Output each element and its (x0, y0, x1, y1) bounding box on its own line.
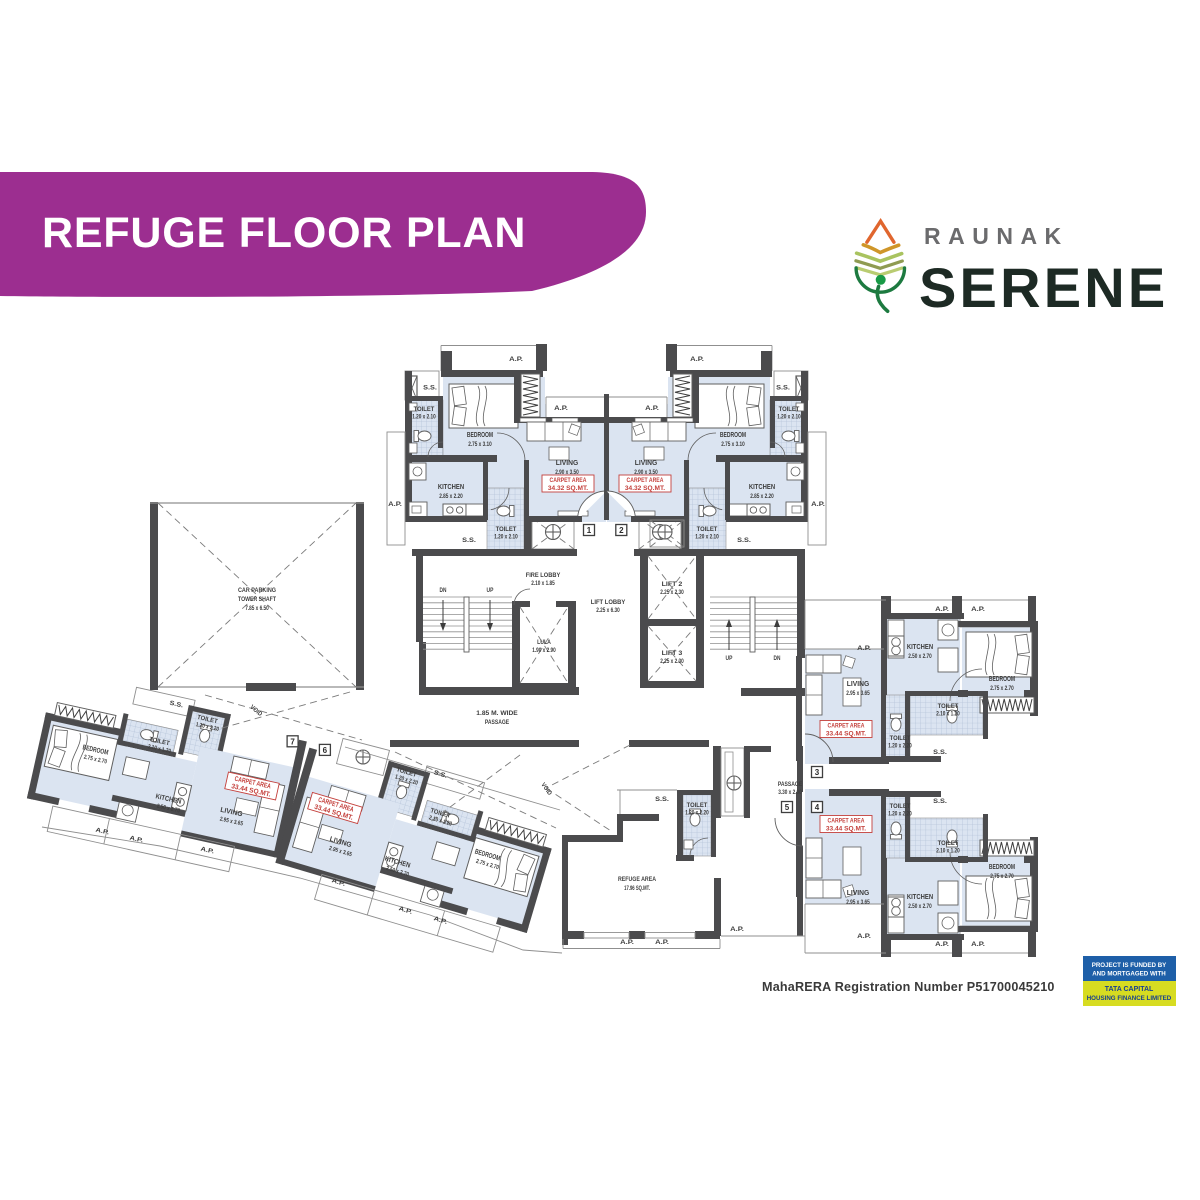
svg-text:LIFT 3: LIFT 3 (662, 650, 683, 657)
svg-text:MahaRERA Registration Number P: MahaRERA Registration Number P5170004521… (762, 980, 1055, 994)
svg-text:RAUNAK: RAUNAK (924, 223, 1069, 249)
svg-text:KITCHEN: KITCHEN (438, 484, 464, 491)
svg-text:1.20 x 2.20: 1.20 x 2.20 (685, 811, 709, 817)
svg-text:33.44 SQ.MT.: 33.44 SQ.MT. (826, 826, 866, 833)
svg-text:A.P.: A.P. (811, 501, 825, 508)
svg-text:1: 1 (587, 526, 592, 535)
svg-text:AND MORTGAGED WITH: AND MORTGAGED WITH (1092, 971, 1166, 978)
svg-text:PROJECT IS FUNDED BY: PROJECT IS FUNDED BY (1092, 962, 1167, 969)
svg-text:REFUGE AREA: REFUGE AREA (618, 876, 656, 883)
svg-text:A.P.: A.P. (857, 645, 871, 652)
svg-text:7: 7 (290, 737, 295, 746)
svg-text:3.30 x 2.00: 3.30 x 2.00 (778, 790, 802, 796)
svg-text:BEDROOM: BEDROOM (989, 864, 1015, 871)
svg-text:A.P.: A.P. (398, 905, 414, 916)
svg-text:CAR PARKING: CAR PARKING (238, 587, 276, 594)
svg-text:A.P.: A.P. (388, 501, 402, 508)
svg-text:A.P.: A.P. (554, 405, 568, 412)
svg-text:6: 6 (323, 746, 328, 755)
svg-text:CARPET AREA: CARPET AREA (550, 477, 587, 484)
svg-text:LIFT 2: LIFT 2 (662, 581, 683, 588)
svg-text:LIVING: LIVING (847, 890, 870, 897)
svg-text:CARPET AREA: CARPET AREA (828, 818, 865, 825)
svg-text:UP: UP (726, 655, 733, 662)
svg-text:TOILET: TOILET (687, 802, 708, 809)
svg-text:KITCHEN: KITCHEN (749, 484, 775, 491)
svg-text:TOWER SHAFT: TOWER SHAFT (238, 596, 276, 603)
svg-text:HOUSING FINANCE LIMITED: HOUSING FINANCE LIMITED (1087, 995, 1172, 1002)
svg-text:BEDROOM: BEDROOM (467, 432, 493, 439)
svg-text:TOILET: TOILET (890, 735, 911, 742)
svg-text:1.20 x 2.20: 1.20 x 2.20 (888, 812, 912, 818)
svg-text:A.P.: A.P. (690, 356, 704, 363)
svg-text:A.P.: A.P. (620, 939, 634, 946)
svg-text:2.90 x 3.50: 2.90 x 3.50 (634, 470, 658, 476)
svg-text:KITCHEN: KITCHEN (907, 894, 933, 901)
svg-text:A.P.: A.P. (971, 941, 985, 948)
svg-text:S.S.: S.S. (423, 385, 437, 392)
svg-text:1.20 x 2.10: 1.20 x 2.10 (777, 415, 801, 421)
svg-text:A.P.: A.P. (730, 926, 744, 933)
svg-text:1.85 M. WIDE: 1.85 M. WIDE (476, 710, 517, 717)
svg-text:S.S.: S.S. (462, 537, 476, 544)
svg-text:TOILET: TOILET (779, 406, 800, 413)
svg-text:S.S.: S.S. (655, 796, 669, 803)
svg-text:5: 5 (785, 803, 790, 812)
svg-text:BEDROOM: BEDROOM (720, 432, 746, 439)
svg-text:S.S.: S.S. (433, 769, 449, 780)
svg-text:A.P.: A.P. (857, 933, 871, 940)
svg-text:2.75 x 3.10: 2.75 x 3.10 (721, 442, 745, 448)
svg-text:1.20 x 2.10: 1.20 x 2.10 (412, 415, 436, 421)
svg-text:4: 4 (815, 803, 820, 812)
svg-text:PASSAGE: PASSAGE (485, 719, 509, 726)
svg-text:2.85 x 2.20: 2.85 x 2.20 (750, 494, 774, 500)
svg-text:2: 2 (619, 526, 624, 535)
svg-text:TOILET: TOILET (414, 406, 435, 413)
svg-text:17.96 SQ.MT.: 17.96 SQ.MT. (624, 886, 650, 892)
svg-text:1.20 x 2.20: 1.20 x 2.20 (888, 744, 912, 750)
svg-text:33.44 SQ.MT.: 33.44 SQ.MT. (826, 731, 866, 738)
svg-text:LIVING: LIVING (556, 460, 579, 467)
svg-text:FIRE LOBBY: FIRE LOBBY (526, 572, 561, 579)
svg-text:S.S.: S.S. (169, 700, 184, 710)
svg-text:DN: DN (440, 587, 447, 594)
svg-text:1.20 x 2.10: 1.20 x 2.10 (494, 535, 518, 541)
svg-text:TOILET: TOILET (697, 526, 718, 533)
svg-text:2.50 x 2.70: 2.50 x 2.70 (908, 904, 932, 910)
svg-text:2.25 x 6.30: 2.25 x 6.30 (596, 608, 620, 614)
svg-text:2.25 x 2.30: 2.25 x 2.30 (660, 590, 684, 596)
svg-text:A.P.: A.P. (935, 941, 949, 948)
svg-text:2.10 x 1.20: 2.10 x 1.20 (936, 849, 960, 855)
svg-text:34.32 SQ.MT.: 34.32 SQ.MT. (548, 485, 588, 492)
svg-text:KITCHEN: KITCHEN (907, 644, 933, 651)
svg-text:LIFT LOBBY: LIFT LOBBY (591, 599, 626, 606)
svg-text:2.90 x 3.50: 2.90 x 3.50 (555, 470, 579, 476)
svg-text:TOILET: TOILET (938, 703, 959, 710)
svg-text:SERENE: SERENE (919, 256, 1169, 319)
svg-text:BEDROOM: BEDROOM (989, 676, 1015, 683)
svg-text:TATA CAPITAL: TATA CAPITAL (1105, 986, 1154, 993)
svg-text:S.S.: S.S. (737, 537, 751, 544)
svg-text:TOILET: TOILET (938, 840, 959, 847)
svg-text:S.S.: S.S. (776, 385, 790, 392)
svg-text:2.95 x 3.65: 2.95 x 3.65 (846, 691, 870, 697)
svg-text:DN: DN (774, 655, 781, 662)
svg-text:1.20 x 2.10: 1.20 x 2.10 (695, 535, 719, 541)
svg-text:UP: UP (487, 587, 494, 594)
svg-text:A.P.: A.P. (971, 606, 985, 613)
svg-text:2.75 x 3.10: 2.75 x 3.10 (468, 442, 492, 448)
svg-text:TOILET: TOILET (890, 803, 911, 810)
svg-text:A.P.: A.P. (645, 405, 659, 412)
svg-text:A.P.: A.P. (129, 835, 144, 845)
svg-text:REFUGE FLOOR PLAN: REFUGE FLOOR PLAN (42, 209, 526, 257)
svg-text:A.P.: A.P. (935, 606, 949, 613)
svg-text:CARPET AREA: CARPET AREA (627, 477, 664, 484)
svg-text:3: 3 (815, 768, 820, 777)
svg-text:A.P.: A.P. (655, 939, 669, 946)
svg-text:2.10 x 1.85: 2.10 x 1.85 (531, 581, 555, 587)
svg-text:1.90 x 2.90: 1.90 x 2.90 (532, 648, 556, 654)
svg-text:LIVING: LIVING (635, 460, 658, 467)
svg-text:A.P.: A.P. (509, 356, 523, 363)
svg-text:2.75 x 2.70: 2.75 x 2.70 (990, 874, 1014, 880)
svg-text:2.50 x 2.70: 2.50 x 2.70 (908, 654, 932, 660)
svg-text:2.75 x 2.70: 2.75 x 2.70 (990, 686, 1014, 692)
svg-text:PASSAGE: PASSAGE (778, 781, 802, 788)
svg-text:2.95 x 3.65: 2.95 x 3.65 (846, 900, 870, 906)
svg-text:A.P.: A.P. (200, 846, 215, 856)
svg-text:A.P.: A.P. (95, 827, 110, 837)
svg-text:TOILET: TOILET (496, 526, 517, 533)
svg-text:2.25 x 2.30: 2.25 x 2.30 (660, 659, 684, 665)
svg-text:S.S.: S.S. (933, 749, 947, 756)
svg-text:LIVING: LIVING (847, 681, 870, 688)
svg-text:7.85 x 6.50: 7.85 x 6.50 (245, 606, 269, 612)
svg-text:VOID: VOID (248, 704, 263, 719)
svg-text:2.10 x 1.20: 2.10 x 1.20 (936, 712, 960, 718)
svg-text:34.32 SQ.MT.: 34.32 SQ.MT. (625, 485, 665, 492)
svg-text:VOID: VOID (539, 781, 553, 797)
svg-text:LULA: LULA (537, 639, 551, 646)
svg-text:S.S.: S.S. (933, 798, 947, 805)
svg-text:2.85 x 2.20: 2.85 x 2.20 (439, 494, 463, 500)
svg-text:CARPET AREA: CARPET AREA (828, 723, 865, 730)
